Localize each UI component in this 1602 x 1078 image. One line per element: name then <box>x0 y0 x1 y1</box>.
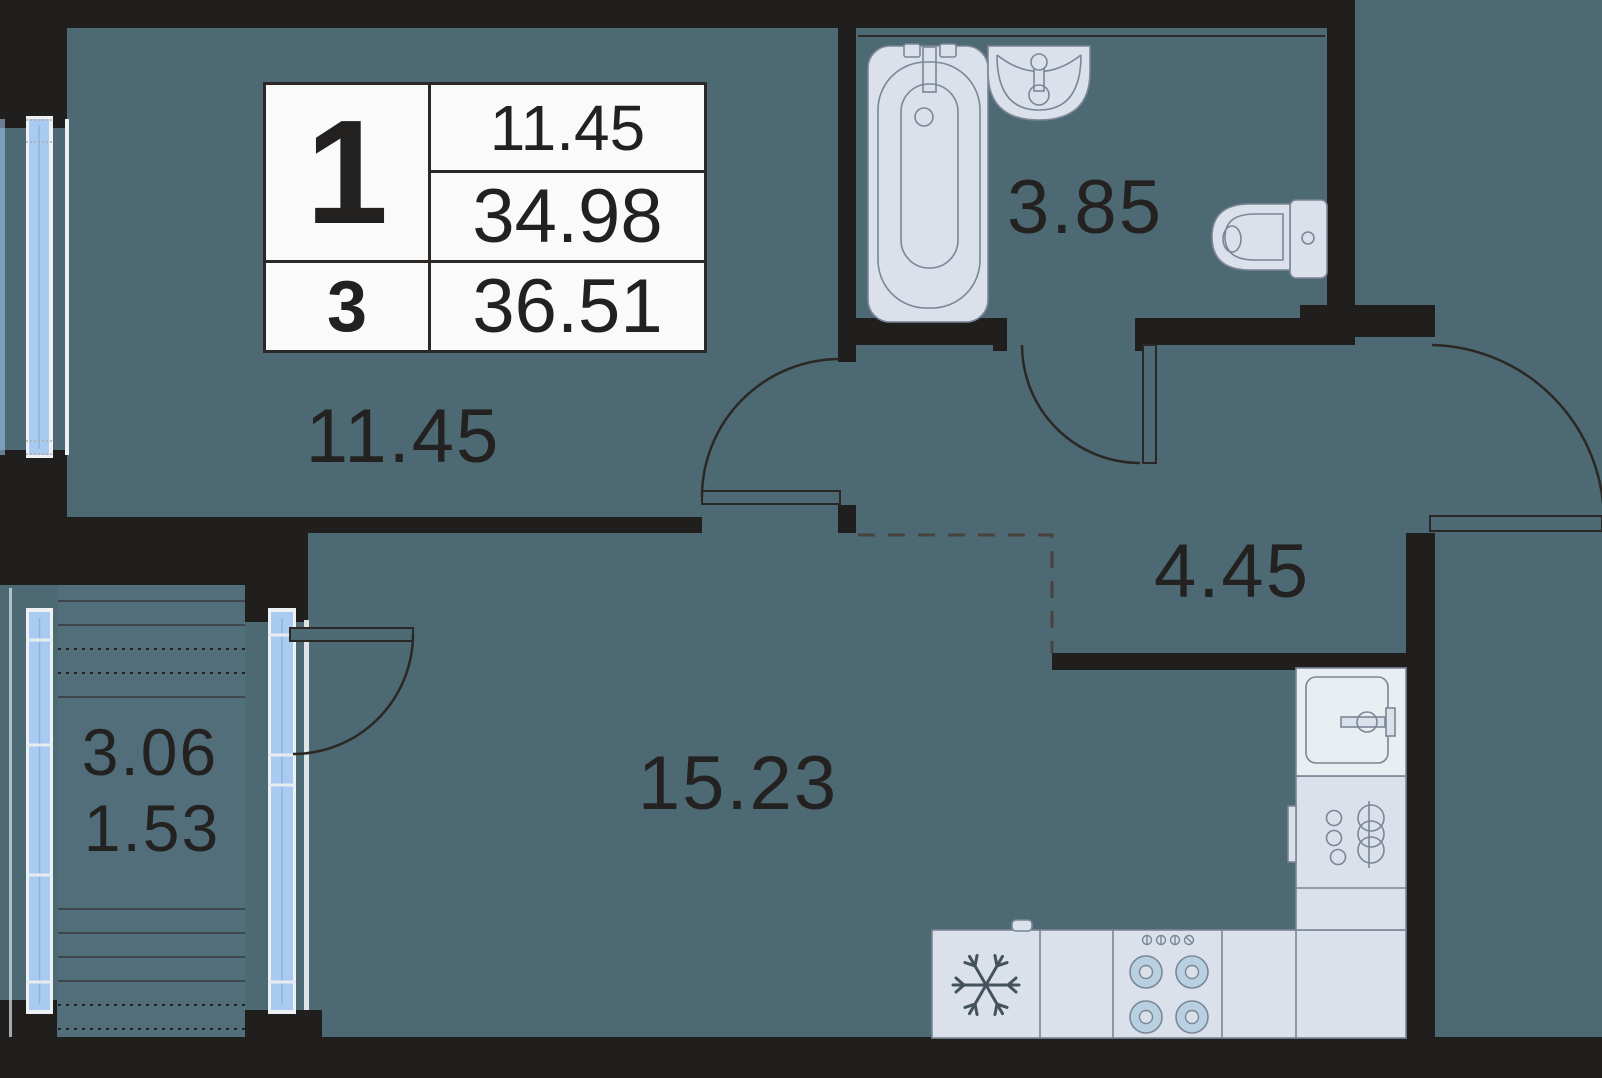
label-bathroom-area: 3.85 <box>1007 170 1163 246</box>
wall-right <box>1406 533 1435 1078</box>
unit-floor-value: 3 <box>266 263 431 350</box>
label-balcony-area-full: 3.06 <box>82 719 218 785</box>
toilet <box>1212 200 1327 278</box>
unit-area-value-1: 11.45 <box>431 85 704 173</box>
bedroom-door-leaf <box>702 491 840 504</box>
counter-right-column <box>1296 776 1406 930</box>
kitchen-sink <box>1296 668 1406 776</box>
label-balcony-area-reduced: 1.53 <box>84 795 220 861</box>
wall-top <box>0 0 1355 28</box>
bathroom-door-leaf <box>1143 345 1156 463</box>
wall-bedroom-bath-partition <box>838 25 856 362</box>
wall-left-top <box>0 0 67 128</box>
wall-bathroom-bottom-right <box>1135 318 1355 345</box>
unit-rooms-value: 1 <box>266 85 431 263</box>
label-bedroom-area: 11.45 <box>306 399 501 475</box>
wall-bottom <box>0 1037 1602 1078</box>
label-hallway-area: 4.45 <box>1154 534 1310 610</box>
unit-area-value-3: 36.51 <box>431 263 704 350</box>
washbasin <box>988 46 1090 120</box>
label-living-kitchen-area: 15.23 <box>638 746 838 822</box>
wall-bathroom-right <box>1327 0 1355 312</box>
unit-area-value-2: 34.98 <box>431 173 704 263</box>
wall-bedroom-balcony <box>0 517 308 585</box>
floor-plan-svg <box>0 0 1602 1078</box>
floor-plan: 1 11.45 34.98 3 36.51 11.45 3.85 4.45 15… <box>0 0 1602 1078</box>
entrance-door-leaf <box>1430 516 1602 531</box>
wall-bedroom-door-stub <box>838 505 856 533</box>
unit-info-table: 1 11.45 34.98 3 36.51 <box>263 82 707 353</box>
bathtub <box>868 44 988 322</box>
wall-bedroom-bottom <box>308 517 702 533</box>
balcony-door-leaf <box>290 628 413 641</box>
